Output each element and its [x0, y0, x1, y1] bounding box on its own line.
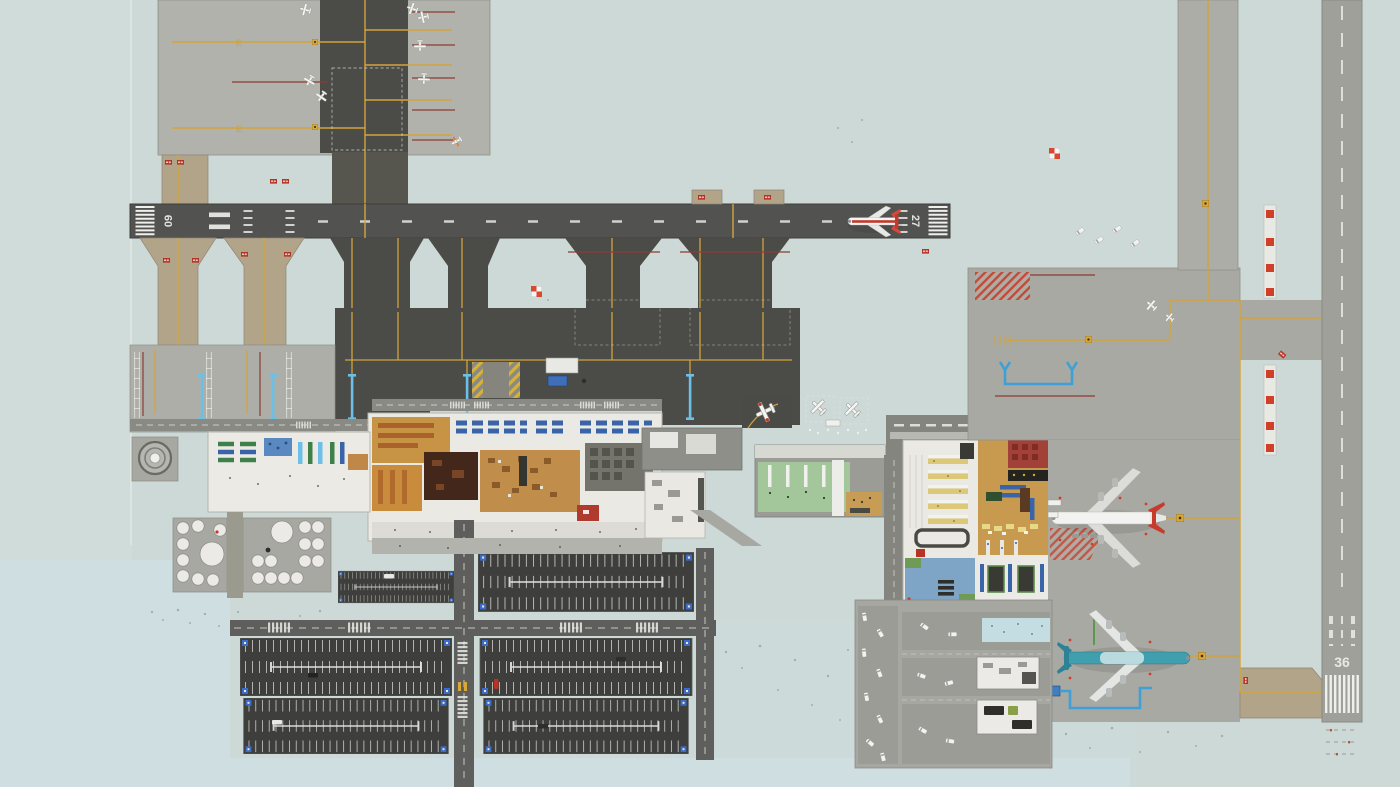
- runway-number-09: 09: [163, 215, 175, 227]
- parking-lot-cell[interactable]: [338, 571, 454, 603]
- runway-09-27[interactable]: 09 27: [130, 204, 950, 238]
- checkerboard-marker: [1049, 148, 1060, 159]
- terminal-forecourt: [372, 538, 662, 554]
- stand-guidance-sign: [1198, 652, 1206, 660]
- stand-sign: [826, 420, 840, 426]
- hold-sign: [192, 258, 199, 263]
- fuel-farm[interactable]: [173, 512, 331, 598]
- taxi-sign-red: [165, 160, 172, 165]
- game-viewport: E E 09 27: [0, 0, 1400, 787]
- terminal-main[interactable]: [368, 413, 662, 541]
- jetbridge: [1048, 512, 1058, 518]
- hold-sign: [1243, 677, 1248, 684]
- hold-sign: [764, 195, 771, 200]
- parking-lot-cell[interactable]: [478, 552, 694, 611]
- taxi-sign-yellow: [1202, 200, 1209, 207]
- red-tail-fin: [1152, 508, 1156, 528]
- taxiway-label-e2: E: [236, 124, 242, 134]
- taxi-sign-yellow: [1085, 336, 1092, 343]
- hold-sign: [922, 249, 929, 254]
- service-vehicle-area[interactable]: [855, 600, 1052, 768]
- airport-map: E E 09 27: [0, 0, 1400, 787]
- service-pool: [982, 618, 1050, 642]
- runway36-connector-south: [1240, 668, 1322, 718]
- terminal-east[interactable]: [884, 415, 1049, 632]
- terminal-west-wing[interactable]: [208, 432, 370, 512]
- taxi-sign-red: [177, 160, 184, 165]
- parking-lot-cell[interactable]: [480, 638, 692, 696]
- stand-guidance-sign: [1176, 514, 1184, 522]
- hold-sign: [284, 252, 291, 257]
- taxiway-dark-strip: [320, 0, 408, 153]
- round-structure[interactable]: [132, 437, 178, 481]
- taxiway-label-e1: E: [236, 38, 242, 48]
- runway-number-36: 36: [1334, 654, 1350, 670]
- parking-lot-cell[interactable]: [240, 638, 452, 696]
- parking-lot-cell[interactable]: [484, 698, 689, 754]
- restricted-hatch-zone: [975, 272, 1030, 300]
- jetbridge: [1048, 500, 1061, 506]
- checkerboard-marker: [531, 286, 542, 297]
- runway-number-27: 27: [909, 215, 921, 227]
- gate-lounges: [978, 558, 1049, 604]
- hold-sign: [698, 195, 705, 200]
- parking-lot-cell[interactable]: [244, 698, 449, 754]
- terminal-room-dark: [424, 452, 478, 500]
- security-hall[interactable]: [755, 445, 885, 517]
- taxi-sign-red: [270, 179, 277, 184]
- taxi-sign-yellow: [312, 39, 318, 45]
- taxi-sign-yellow: [312, 124, 318, 130]
- hold-sign: [163, 258, 170, 263]
- teal-tail-fin: [1064, 646, 1069, 670]
- taxiway-connector-to-runway: [332, 152, 408, 205]
- west-stands-apron: [130, 345, 335, 432]
- taxi-sign-red: [282, 179, 289, 184]
- hold-sign: [241, 252, 248, 257]
